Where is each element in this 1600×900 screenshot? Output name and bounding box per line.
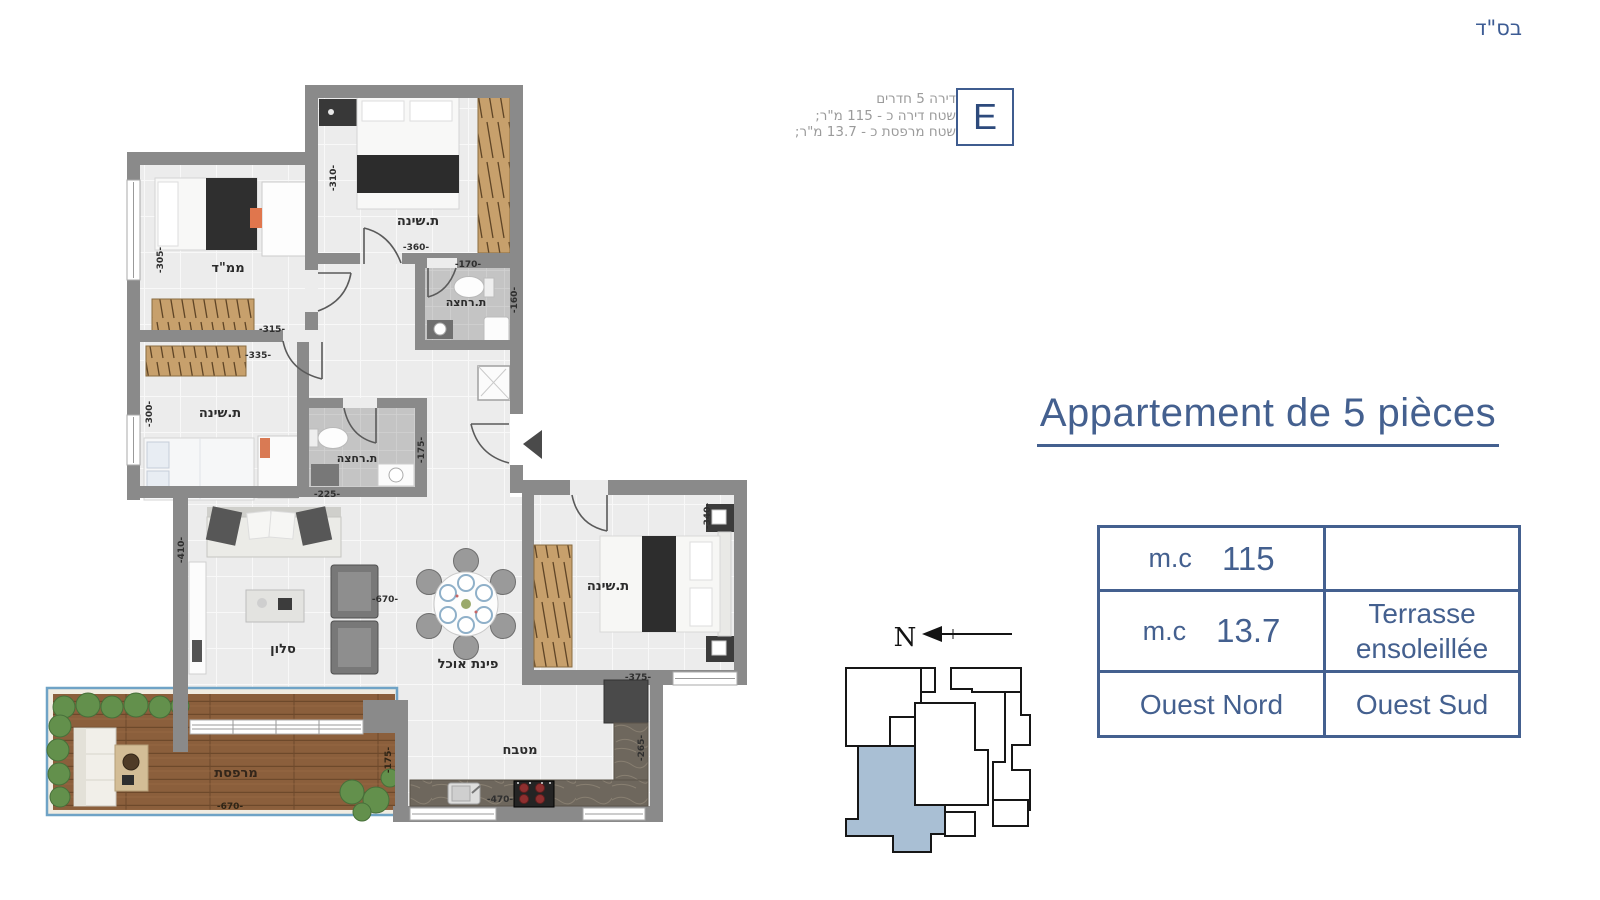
area-value: 115	[1222, 540, 1275, 578]
area-note	[1326, 555, 1518, 563]
room-label-dining: פינת אוכל	[438, 657, 499, 672]
bsd-text: בס"ד	[1475, 16, 1522, 40]
dim: -305-	[156, 247, 166, 274]
room-label-salon: סלון	[270, 642, 296, 657]
terrace-name-cell: Terrasse ensoleillée	[1325, 591, 1520, 672]
terrace-value: 13.7	[1216, 612, 1280, 650]
room-label-bedroom-top: ת.שינה	[397, 214, 439, 229]
room-label-bathroom-top: ת.רחצה	[446, 296, 487, 309]
dim: -265-	[637, 735, 647, 762]
table-row: m.c 13.7 Terrasse ensoleillée	[1099, 591, 1520, 672]
unit-info-line: דירה 5 חדרים	[758, 91, 956, 108]
kitchen-sink	[448, 783, 480, 804]
room-label-bedroom-right: ת.שינה	[587, 579, 629, 594]
unit-badge: דירה 5 חדרים שטח דירה כ - 115 מ"ר; שטח מ…	[758, 88, 1026, 146]
dim: -310-	[329, 165, 339, 192]
kitchen-stove	[514, 781, 554, 807]
dim: -410-	[177, 537, 187, 564]
dim: -470-	[487, 795, 514, 805]
unit-info: דירה 5 חדרים שטח דירה כ - 115 מ"ר; שטח מ…	[758, 88, 956, 141]
area-label: m.c	[1148, 543, 1192, 574]
dim: -340-	[703, 503, 713, 530]
room-label-mamad: ממ"ד	[211, 261, 244, 276]
table-row: Ouest Nord Ouest Sud	[1099, 672, 1520, 737]
table-row: m.c 115	[1099, 527, 1520, 591]
bedroom-right-wardrobe	[534, 545, 572, 667]
room-label-bedroom-left: ת.שינה	[199, 406, 241, 421]
terrace-cell: m.c 13.7	[1099, 591, 1325, 672]
dim: -175-	[384, 747, 394, 774]
shaft	[478, 366, 510, 400]
room-label-kitchen: מטבח	[502, 743, 537, 758]
north-arrow-icon: N	[894, 623, 1012, 653]
dim: -300-	[145, 401, 155, 428]
unit-letter: E	[973, 96, 997, 138]
orientation-left: Ouest Nord	[1100, 683, 1323, 726]
north-label: N	[894, 623, 917, 653]
dim: -170-	[455, 260, 482, 270]
area-cell: m.c 115	[1099, 527, 1325, 591]
dim: -175-	[417, 437, 427, 464]
page-title-text: Appartement de 5 pièces	[1037, 391, 1499, 447]
room-label-terrace: מרפסת	[214, 766, 258, 781]
spec-table: m.c 115 m.c 13.7 Terrasse ensoleillée Ou…	[1097, 525, 1521, 738]
area-note-cell	[1325, 527, 1520, 591]
dim: -225-	[314, 490, 341, 500]
entrance-marker-icon	[523, 430, 542, 459]
orientation-left-cell: Ouest Nord	[1099, 672, 1325, 737]
room-label-bathroom-mid: ת.רחצה	[337, 452, 378, 465]
dim: -360-	[403, 243, 430, 253]
dim: -160-	[510, 287, 520, 314]
dim: -315-	[259, 325, 286, 335]
unit-info-line: שטח דירה כ - 115 מ"ר;	[758, 108, 956, 125]
floor-plan: ממ"ד ת.שינה ת.רחצה ת.שינה ת.רחצה סלון פי…	[30, 80, 754, 853]
page-title: Appartement de 5 pièces	[1012, 391, 1524, 447]
terrace-name: Terrasse ensoleillée	[1326, 592, 1518, 670]
unit-letter-box: E	[956, 88, 1014, 146]
terrace-label: m.c	[1143, 616, 1187, 647]
orientation-right: Ouest Sud	[1326, 683, 1518, 726]
dim: -670-	[372, 595, 399, 605]
dim: -335-	[245, 351, 272, 361]
dim: -375-	[625, 673, 652, 683]
unit-info-line: שטח מרפסת כ - 13.7 מ"ר;	[758, 124, 956, 141]
orientation-right-cell: Ouest Sud	[1325, 672, 1520, 737]
building-footprint	[846, 668, 1030, 852]
key-plan: N	[818, 598, 1034, 865]
dim: -670-	[217, 802, 244, 812]
terrace-slider	[190, 720, 363, 734]
